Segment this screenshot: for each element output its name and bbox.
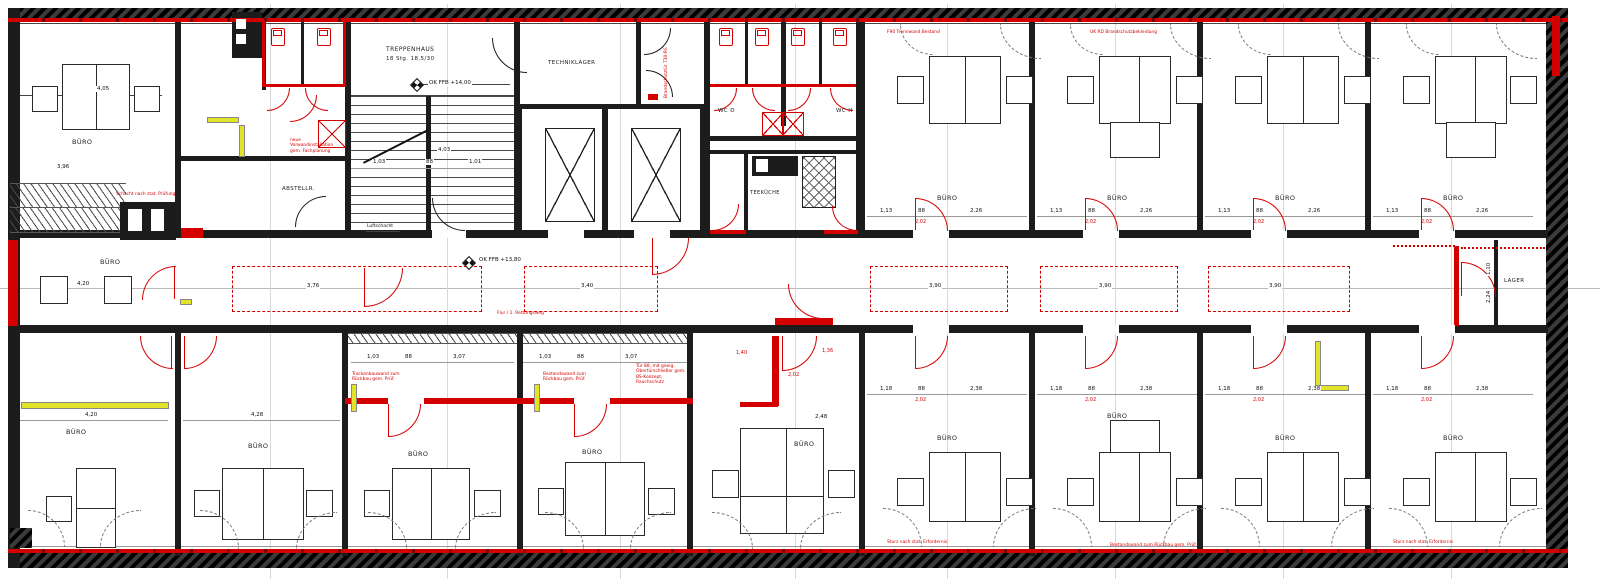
dimension-text: 88 [1255,386,1264,392]
dimension-text: 1,18 [879,386,893,392]
window-swing [1496,24,1537,59]
door-opening [1251,325,1287,333]
desk [1099,56,1171,124]
toilet-icon [271,28,285,46]
demolition-wall [181,300,191,304]
door-leaf [652,238,653,274]
door-leaf [915,198,916,230]
desk [222,468,304,540]
chair [1067,478,1094,506]
label-underline [366,231,400,232]
washbasin-unit [782,112,804,136]
dimension-text: 2,24 [1486,290,1492,304]
dimension-text: 88 [1423,386,1432,392]
dimension-text: 2,26 [1307,208,1321,214]
door-swing [832,206,857,231]
wall [1494,240,1498,326]
chair [1344,478,1371,506]
dimension-text: 3,40 [580,283,594,289]
table [40,276,68,304]
chair [538,488,564,515]
window-swing [1170,24,1211,59]
elevator-car [545,128,595,222]
dimension-text: 1,18 [1049,386,1063,392]
room-label: BÜRO [100,258,120,266]
door-swing [492,38,527,73]
room-label: BÜRO [408,450,428,458]
door-leaf [915,336,916,368]
chair [32,86,58,112]
room-label: BÜRO [1107,412,1127,420]
dimension-text: 4,28 [250,412,264,418]
desk-return [1110,420,1160,456]
desk [565,462,645,536]
dimension-text: 2,26 [1139,208,1153,214]
dimension-line [867,394,1027,395]
chair [897,76,924,104]
door-opening [913,230,949,238]
door-leaf [1421,336,1422,368]
window-swing [1238,24,1271,55]
chair [134,86,160,112]
dimension-line [1205,394,1365,395]
room-label: TECHNIKLAGER [548,60,595,66]
door-opening [1083,325,1119,333]
dimension-text: 3,76 [306,283,320,289]
dimension-text: 4,05 [96,86,110,92]
dimension-text: 4,20 [76,281,90,287]
dimension-text: 3,96 [56,164,70,170]
demolition-wall [352,385,356,411]
demolition-wall [1316,342,1320,386]
elevator-car [631,128,681,222]
room-label: TEEKÜCHE [750,190,780,196]
shaft-label: Luftschacht [366,224,394,229]
wall [859,333,865,556]
room-label: BÜRO [1275,434,1295,442]
door-swing [1085,336,1118,369]
door-leaf [574,404,575,436]
door-leaf [388,404,389,436]
exterior-wall-right [1546,8,1568,568]
new-wall-segment [181,228,203,238]
door-swing [915,198,948,231]
level-text: OK FFB +14,00 [428,80,472,86]
door-leaf [171,336,172,368]
door-leaf [1253,336,1254,368]
desk-return [1446,122,1496,158]
new-wall-segment [824,230,858,234]
room-label: ABSTELLR. [282,186,315,192]
new-wc-stall-wall [343,22,346,84]
toilet-icon [719,28,733,46]
dimension-text: 88 [404,354,413,360]
wall [704,150,862,154]
desk [1435,56,1507,124]
dimension-line [523,362,687,363]
demolition-wall [22,403,168,408]
dimension-text: 4,03 [437,147,451,153]
dimension-text: 1,13 [879,208,893,214]
window-swing [1406,24,1439,55]
corridor-ceiling-zone [1040,266,1178,312]
new-wall-segment [775,318,833,325]
dimension-line [1037,216,1197,217]
dimension-text: 1,18 [1385,386,1399,392]
annotation: neue Vorwandinstallation gem. Fachplanun… [290,138,344,154]
dimension-line [1373,394,1533,395]
new-wall-right-accent [1552,16,1560,76]
sink [756,159,768,172]
door-dimension: 2,02 [1421,219,1432,225]
door-opening [1251,230,1287,238]
elevator-shaft-wall [602,108,608,237]
dimension-text: 88 [1423,208,1432,214]
dimension-text: 1,03 [366,354,380,360]
door-dimension: 2,02 [1253,397,1264,403]
door-dimension: 2,02 [1421,397,1432,403]
dimension-text: 88 [576,354,585,360]
shaft-opening [128,209,142,231]
dimension-text: 88 [1255,208,1264,214]
annotation: Brandschutztür T30-RS [664,28,669,98]
door-swing [782,336,817,371]
door-swing [140,336,173,369]
door-opening [1083,230,1119,238]
floor-plan: BÜRO 4,05 3,96 Schacht nach stat. Prüfun… [0,0,1600,583]
window-swing [1070,24,1103,55]
room-label: BÜRO [72,138,92,146]
wc-stall-divider [301,22,304,86]
chair [1006,76,1033,104]
shaft [802,156,836,208]
dimension-text: 88 [917,208,926,214]
new-wall-segment [710,230,746,234]
level-marker-icon [410,78,424,92]
window-swing [1221,508,1260,547]
toilet-icon [317,28,331,46]
door-swing [184,336,217,369]
door-leaf [184,336,185,368]
new-wc-stall-front-wall [710,84,856,87]
new-wall-left-accent [8,240,18,326]
door-dimension: 2,02 [915,397,926,403]
wall [175,22,181,232]
door-swing [788,284,823,319]
wall [342,333,348,556]
new-wc-stall-wall [262,22,265,84]
new-wall-dotted-line [1393,245,1455,247]
door-swing [1085,198,1118,231]
door-leaf [1421,198,1422,230]
dimension-text: 1,03 [372,159,386,165]
toilet-icon [791,28,805,46]
door-opening [913,325,949,333]
door-swing [652,238,689,275]
chair [648,488,675,515]
desk-return [1110,122,1160,158]
desk [392,468,470,540]
chair [712,470,739,498]
kitchen-appliance [236,34,246,44]
chair [1067,76,1094,104]
toilet-icon [833,28,847,46]
door-opening [432,230,466,238]
level-text: OK FFB +13,80 [478,257,522,263]
room-label: BÜRO [1443,194,1463,202]
room-label: BÜRO [937,194,957,202]
dimension-text: 2,38 [1139,386,1153,392]
annotation: Sturz nach stat. Erfordernis [887,540,947,545]
dimension-line [20,420,168,421]
door-dimension: 2,02 [1085,219,1096,225]
dimension-line [1037,394,1197,395]
door-swing [290,95,317,122]
door-swing [388,404,421,437]
wall [175,333,181,556]
dimension-text: 1,13 [1217,208,1231,214]
door-dimension: 2,02 [915,219,926,225]
elevator-shaft-wall [514,104,522,237]
room-label: BÜRO [66,428,86,436]
desk [929,452,1001,522]
door-swing [267,88,290,111]
stair-landing-line [351,95,514,96]
corridor-ceiling-zone [524,266,658,312]
door-opening [1419,230,1455,238]
demolition-wall [208,118,238,122]
demolition-wall [535,385,539,411]
door-swing [295,196,326,227]
new-wall-dotted-line [1461,247,1545,249]
annotation: Bestandswand zum Rückbau gem. Prüf. [1110,543,1197,548]
dimension-text: 88 [1087,208,1096,214]
washbasin-unit [762,112,784,136]
annotation: UK RD Brandschutzbekleidung [1090,30,1157,35]
room-label: BÜRO [794,440,814,448]
door-leaf [782,336,783,370]
chair [1344,76,1371,104]
wall [781,22,786,126]
chair [1403,478,1430,506]
chair [1510,76,1537,104]
chair [1235,478,1262,506]
table [104,276,132,304]
new-wall-segment [772,336,779,406]
room-label: BÜRO [582,448,602,456]
desk [929,56,1001,124]
new-wall-segment [648,94,658,100]
corridor-wall-south [8,325,1548,333]
door-leaf [1085,336,1086,368]
dimension-text: 2,38 [969,386,983,392]
door-swing [1421,198,1454,231]
door-swing [915,336,948,369]
dimension-line [1373,216,1533,217]
room-label: BÜRO [1443,434,1463,442]
door-leaf [364,268,365,306]
door-opening [1419,325,1455,333]
desk [1267,56,1339,124]
dimension-text: 3,90 [1098,283,1112,289]
door-swing [142,266,176,300]
dimension-text: 1,03 [538,354,552,360]
wall [859,22,865,238]
desk [1099,452,1171,522]
window-swing [1000,24,1041,59]
annotation: Sturz nach stat. Erfordernis [1393,540,1453,545]
desk [1267,452,1339,522]
room-label: BÜRO [248,442,268,450]
wall [636,22,641,109]
door-swing [1253,336,1286,369]
dimension-line [867,216,1027,217]
room-label: WC H [836,108,853,114]
door-dimension: 2,02 [1253,219,1264,225]
stair-steps-note: 18 Stg. 18,5/30 [386,56,434,62]
door-leaf [174,266,175,299]
dimension-text: 1,13 [1049,208,1063,214]
door-swing [574,404,607,437]
wall [704,22,710,238]
dimension-text: 1,40 [736,350,747,356]
kitchen-appliance [236,19,246,29]
dimension-text: 1,10 [1486,262,1492,276]
wall [744,152,748,232]
room-label: BÜRO [937,434,957,442]
door-dimension: 2,02 [1085,397,1096,403]
door-leaf [1461,262,1462,296]
door-swing [1421,336,1454,369]
new-wall-segment [740,402,778,407]
dimension-text: 88 [425,159,434,165]
room-label: WC D [718,108,735,114]
chair [1006,478,1033,506]
window-swing [1053,508,1092,547]
toilet-icon [755,28,769,46]
room-label: LAGER [1504,278,1524,284]
chair [828,470,855,498]
annotation: Trockenbauwand zum Rückbau gem. Prüf. [352,372,406,383]
dimension-text: 3,90 [928,283,942,289]
chair [1176,478,1203,506]
dimension-text: 3,07 [452,354,466,360]
corridor-wall-north [8,230,1548,238]
ramp-hatch-area [10,207,126,233]
dimension-text: 2,38 [1475,386,1489,392]
dimension-text: 2,26 [969,208,983,214]
wall [704,136,862,141]
dimension-text: 3,07 [624,354,638,360]
dimension-text: 2,26 [1475,208,1489,214]
exterior-wall-bottom-red-line [8,549,1568,553]
desk [1435,452,1507,522]
annotation: Flur / 1. Rettungsweg [497,311,544,316]
dimension-text: 2,38 [1307,386,1321,392]
window-swing [900,24,933,55]
door-swing [1253,198,1286,231]
dimension-text: 1,01 [468,159,482,165]
ramp-hatch-area [10,183,126,208]
annotation: Bestandswand zum Rückbau gem. Prüf. [543,372,597,383]
dimension-text: 88 [917,386,926,392]
dimension-line [351,362,514,363]
dimension-line [351,168,514,169]
corridor-ceiling-zone [232,266,482,312]
dimension-text: 2,48 [814,414,828,420]
door-swing [712,204,739,231]
window-swing [1338,24,1379,59]
dimension-text: 1,36 [822,348,833,354]
desk [62,64,130,130]
exterior-wall-bottom [8,553,1568,568]
corridor-ceiling-zone [870,266,1008,312]
dimension-line [1205,216,1365,217]
door-swing [788,88,811,111]
chair [1403,76,1430,104]
dimension-text: 1,18 [1217,386,1231,392]
elevator-door-opening [548,230,584,238]
chair [1235,76,1262,104]
chair [1176,76,1203,104]
wall [517,333,523,556]
door-leaf [1253,198,1254,230]
new-wall-segment [1454,246,1459,326]
annotation: F90 Trennwand Bestand [887,30,940,35]
door-swing [752,88,775,111]
dimension-text: 2,02 [788,372,799,378]
corridor-ceiling-zone [1208,266,1350,312]
dimension-text: 1,13 [1385,208,1399,214]
chair [897,478,924,506]
dimension-text: 4,20 [84,412,98,418]
dimension-text: 3,90 [1268,283,1282,289]
wall [520,104,710,109]
wc-stall-divider [819,22,822,84]
door-leaf [1085,198,1086,230]
wc-stall-divider [745,22,748,84]
chair [1510,478,1537,506]
annotation: Schacht nach stat. Prüfung [116,192,178,197]
shaft-opening [151,209,164,231]
annotation: Tür 88, mit geeig. Obertürschließer gem.… [636,364,686,385]
dimension-text: 88 [1087,386,1096,392]
new-wc-stall-front-wall [262,84,346,87]
room-label: BÜRO [1107,194,1127,202]
demolition-wall [240,126,244,156]
room-label: BÜRO [1275,194,1295,202]
wall [687,333,693,556]
elevator-door-opening [634,230,670,238]
dimension-line [183,420,340,421]
room-label: TREPPENHAUS [386,46,434,53]
wall [178,156,345,161]
